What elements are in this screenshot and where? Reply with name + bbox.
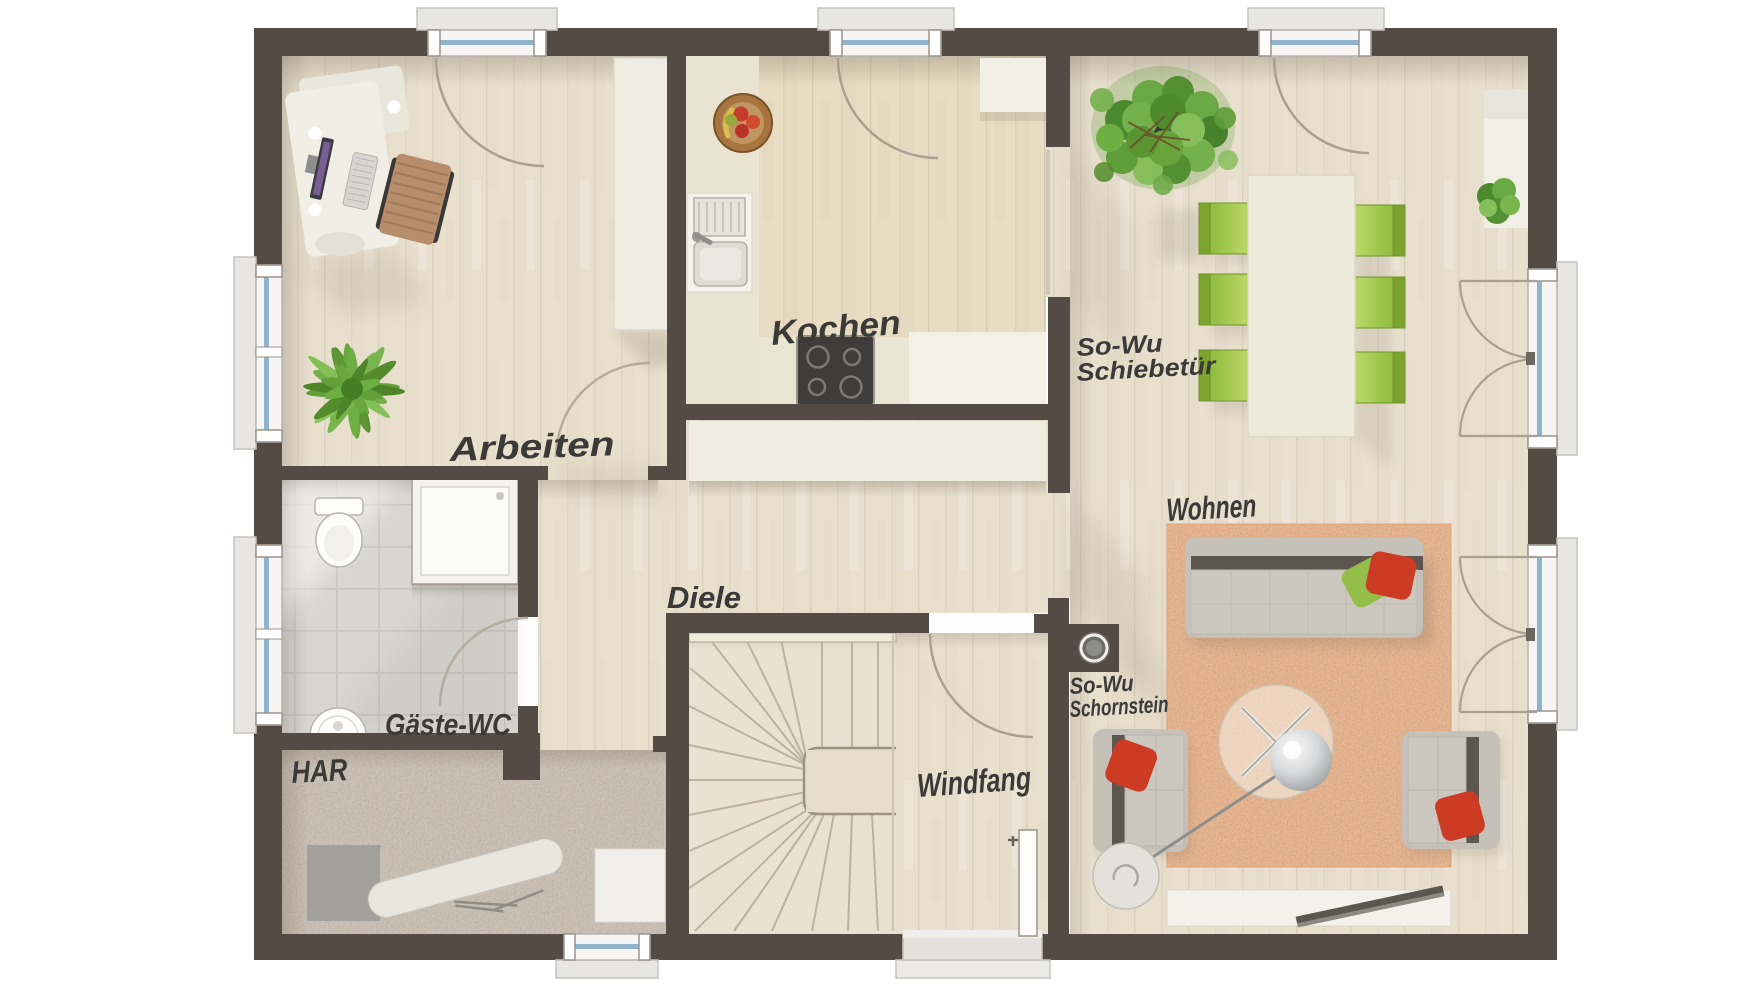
svg-text:Diele: Diele (667, 580, 741, 615)
svg-text:Schornstein: Schornstein (1069, 691, 1169, 722)
svg-text:Gäste-WC: Gäste-WC (385, 707, 512, 742)
svg-text:HAR: HAR (291, 752, 349, 790)
svg-text:Arbeiten: Arbeiten (448, 425, 615, 469)
svg-text:Wohnen: Wohnen (1165, 487, 1257, 528)
